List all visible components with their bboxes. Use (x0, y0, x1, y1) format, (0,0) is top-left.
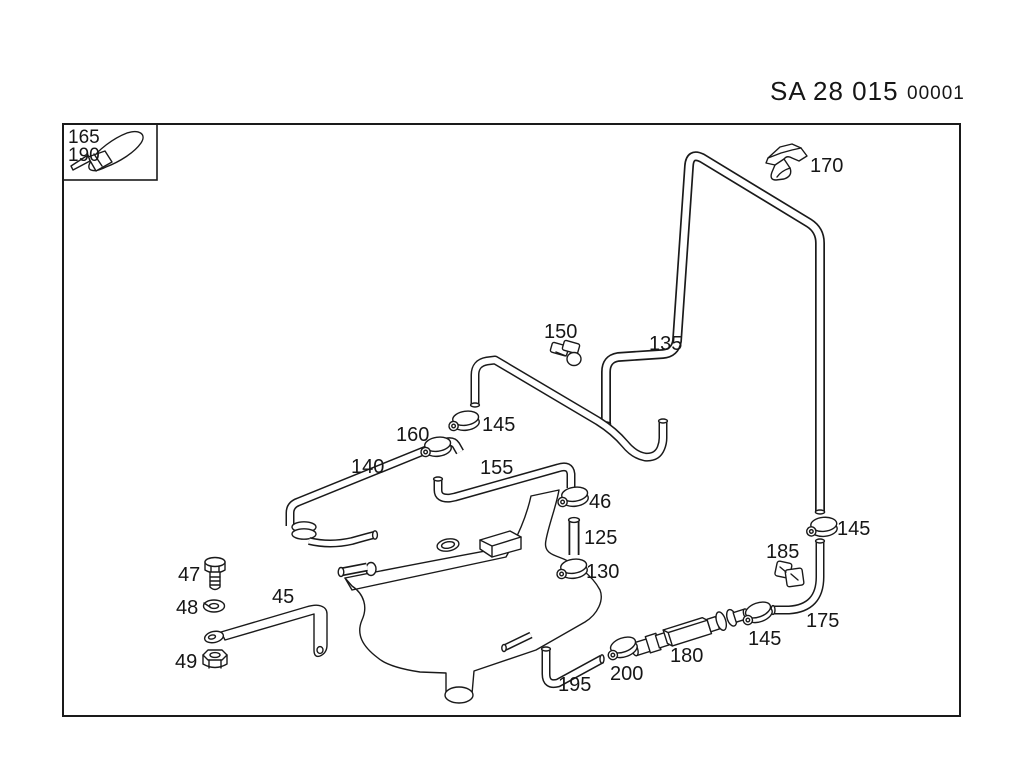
clamp-200 (604, 634, 639, 662)
callout-160: 160 (396, 424, 429, 446)
hose-middle (471, 360, 668, 457)
clamp-145-b (806, 516, 838, 538)
callout-145-a: 145 (482, 414, 515, 436)
side-pin (338, 563, 376, 577)
clip-185 (774, 561, 804, 587)
tube-125 (569, 518, 580, 555)
filler-cap (436, 537, 460, 553)
callout-175: 175 (806, 610, 839, 632)
callout-48: 48 (176, 597, 198, 619)
callout-130: 130 (586, 561, 619, 583)
callout-200: 200 (610, 663, 643, 685)
header-code: 28 015 (813, 76, 899, 106)
header-sheet: 00001 (907, 83, 965, 104)
page-header: SA 28 015 00001 (770, 76, 965, 106)
washer-system-parts-diagram: SA 28 015 00001 165 190 (0, 0, 1024, 770)
callout-185: 185 (766, 541, 799, 563)
clamp-145-a (447, 410, 480, 433)
callout-155: 155 (480, 457, 513, 479)
washer-reservoir (338, 490, 601, 703)
nut-49 (203, 650, 227, 668)
callout-125: 125 (584, 527, 617, 549)
callout-45: 45 (272, 586, 294, 608)
callout-47: 47 (178, 564, 200, 586)
bracket-45 (204, 605, 327, 656)
hose-135 (601, 156, 824, 514)
callout-145-b: 145 (837, 518, 870, 540)
bolt-47 (205, 558, 225, 590)
parts-catalog-page: SA 28 015 00001 165 190 (0, 0, 1024, 770)
callout-140: 140 (351, 456, 384, 478)
callout-195: 195 (558, 674, 591, 696)
inset-label-190: 190 (68, 145, 100, 166)
washer-48 (204, 600, 225, 612)
reservoir-outlet (445, 687, 473, 703)
callout-170: 170 (810, 155, 843, 177)
callout-46: 46 (589, 491, 611, 513)
callout-150: 150 (544, 321, 577, 343)
callout-49: 49 (175, 651, 197, 673)
callout-145-c: 145 (748, 628, 781, 650)
clip-170 (766, 144, 807, 180)
clip-150 (550, 340, 581, 366)
callout-180: 180 (670, 645, 703, 667)
header-series: SA (770, 76, 807, 106)
clamp-46 (556, 486, 589, 509)
callout-135: 135 (649, 333, 682, 355)
